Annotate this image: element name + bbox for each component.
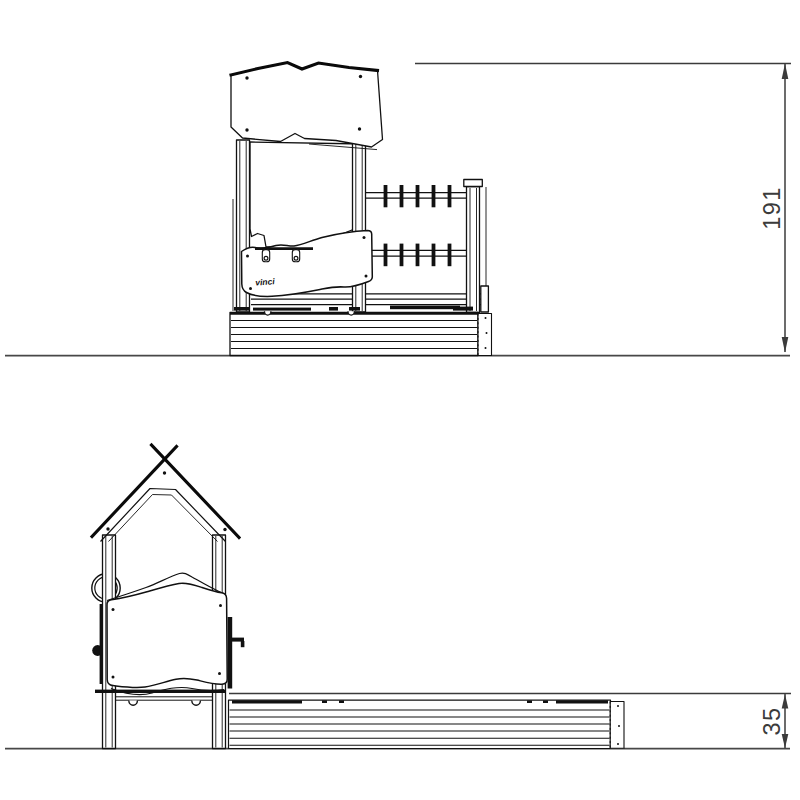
- technical-drawing-canvas: 191: [0, 0, 800, 800]
- arrowhead-up-icon: [782, 64, 789, 79]
- platform-end-cap: [478, 314, 492, 356]
- net-end-post: [464, 180, 483, 313]
- playhouse-roof: [92, 445, 239, 542]
- net-rungs-bottom-row: [386, 244, 450, 267]
- fixing-loop: [265, 311, 271, 315]
- fixing-loop: [348, 311, 354, 315]
- front-elevation-view: 35: [5, 445, 791, 749]
- elevation-drawing-svg: 191: [0, 0, 800, 800]
- fixing-loop: [192, 701, 201, 706]
- post-cap: [464, 180, 483, 187]
- tower-back-panel: [250, 142, 365, 247]
- net-climber: [362, 185, 467, 266]
- sandbox-end-cap: [610, 702, 624, 749]
- dimension-label-191: 191: [759, 186, 785, 230]
- vinci-logo: vinci: [255, 276, 276, 287]
- side-elevation-view: 191: [5, 63, 791, 356]
- side-panel-edge: [92, 604, 103, 684]
- fixing-loop: [129, 701, 138, 706]
- dimension-label-35: 35: [759, 706, 785, 735]
- panel-handle: [228, 617, 245, 689]
- net-rungs-top-row: [386, 185, 450, 207]
- arrowhead-up-icon: [782, 694, 789, 708]
- roof-canopy: [231, 63, 383, 150]
- rafter-right: [152, 445, 240, 538]
- arrowhead-down-icon: [782, 337, 789, 352]
- sandbox: [229, 700, 625, 748]
- play-panel: [107, 583, 227, 695]
- base-platform: [230, 311, 492, 355]
